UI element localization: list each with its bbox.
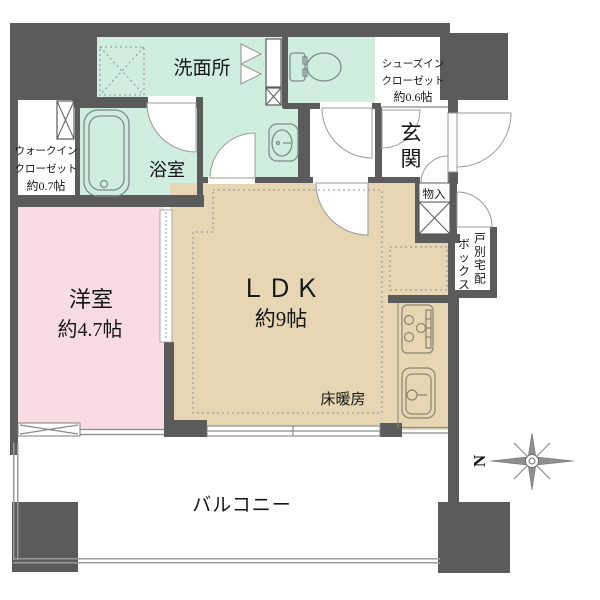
wall: [298, 103, 310, 183]
wall: [448, 100, 458, 113]
north-label: N: [470, 454, 489, 467]
wall: [388, 295, 452, 303]
label-floor-heating: 床暖房: [320, 391, 365, 408]
wall: [448, 295, 459, 502]
wall: [448, 227, 455, 297]
label-wic-1: ウォークイン: [15, 145, 78, 157]
label-wic-2: クローゼット: [15, 163, 78, 175]
room-toilet: [288, 37, 375, 103]
floor-plan-page: N 洗面所 浴室 ウォークイン クローゼット 約0.7帖 シューズイン クローゼ…: [0, 0, 600, 600]
label-washroom: 洗面所: [173, 57, 230, 79]
label-entrance: 玄関: [401, 121, 422, 171]
wall: [282, 35, 288, 108]
floor-plan: N 洗面所 浴室 ウォークイン クローゼット 約0.7帖 シューズイン クローゼ…: [0, 0, 600, 600]
room-western: [18, 207, 164, 429]
label-western-room: 洋室: [69, 287, 113, 312]
front-door-step: [448, 113, 457, 172]
sliding-partition: [160, 210, 172, 342]
entrance-front-door-arc: [457, 113, 511, 167]
wic-shaft-icon: [57, 101, 74, 139]
storage-shaft-icon: [419, 202, 450, 234]
wall: [164, 342, 174, 424]
balcony-pillar-left: [12, 502, 78, 572]
label-balcony: バルコニー: [192, 495, 292, 516]
toilet-shaft-icon: [266, 88, 281, 105]
wall: [14, 195, 204, 207]
wall: [375, 108, 382, 177]
wall: [164, 420, 207, 437]
wall: [70, 23, 450, 37]
label-delivery-box-left: ボックス: [458, 238, 470, 292]
label-wic-3: 約0.7帖: [26, 178, 65, 193]
delivery-box-door-arc: [457, 192, 492, 227]
label-ldk-size: 約9帖: [255, 307, 308, 331]
wall: [440, 33, 508, 100]
label-bathroom: 浴室: [149, 160, 185, 180]
compass-icon: N: [470, 433, 574, 490]
balcony-pillar-right: [438, 502, 510, 573]
label-storage: 物入: [423, 187, 446, 201]
wall: [380, 423, 402, 437]
toilet-door-arc: [322, 108, 372, 158]
bedroom-floor: [18, 207, 164, 429]
wall: [490, 227, 497, 297]
label-sic-3: 約0.6帖: [393, 89, 432, 104]
entrance-hall-door-arc: [421, 156, 448, 183]
label-sic-2: クローゼット: [382, 75, 445, 87]
label-ldk: ＬＤＫ: [240, 276, 321, 303]
label-sic-1: シューズイン: [382, 57, 444, 70]
label-delivery-box-right: 戸別宅配: [474, 233, 486, 286]
label-western-room-size: 約4.7帖: [58, 318, 123, 341]
